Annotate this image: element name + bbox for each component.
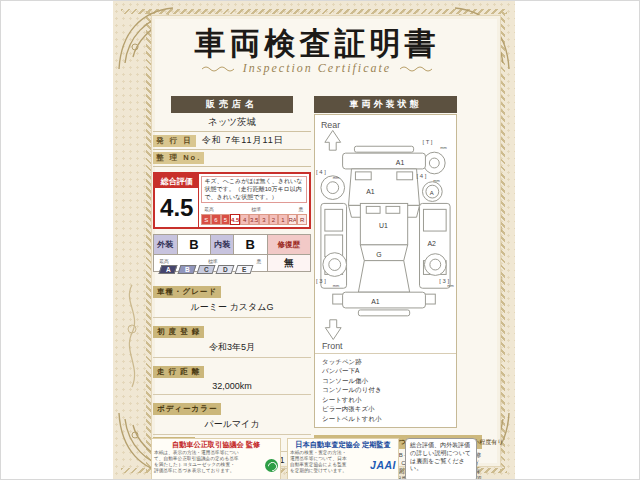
exterior-column: 車両外装状態 [314, 96, 482, 480]
marker-rear-gate: A1 [366, 188, 375, 195]
back-note-box: 総合評価、内外装評価の詳しい説明については裏面をご覧ください。 [405, 438, 477, 480]
exterior-note: タッチペン跡 [322, 357, 456, 366]
tread-front-left: [ 3 ] [316, 278, 326, 284]
scale-label-best: 最高 [205, 206, 215, 213]
marker-wheel: A [430, 190, 434, 196]
condition-scale-wrap: 最高 標準 悪 ABCDE [154, 255, 267, 271]
grade-scale-cell: 6 [211, 214, 221, 225]
condition-scale-cell: A [159, 265, 178, 274]
unit-label: mm [333, 175, 340, 180]
condition-values-row: 外装 B 内装 B 修復歴 [154, 235, 310, 254]
exterior-note: シートすれ小 [322, 395, 456, 404]
ref-no-label: 整 理 No. [153, 152, 204, 164]
grade-scale-cell: 3 [259, 214, 269, 225]
grade-scale-cell: 5 [221, 214, 231, 225]
vehicle-detail-row: 車種・グレード ルーミー カスタムG [153, 278, 311, 318]
marker-rear-bumper: A1 [396, 159, 405, 166]
exterior-note: ピラー内張キズ小 [322, 404, 456, 413]
grade-scale-cell: 2 [269, 214, 279, 225]
subtitle-flourish-icon [399, 65, 433, 73]
spare-tread-label: [ T ] [422, 139, 432, 145]
car-condition-diagram: Rear Front [ T ] mm [ 4 ] mm [ 4 ] mm [ … [315, 115, 456, 353]
footer-stamps: 自動車公正取引協議会 監修 本紙は、表示の方法・運用基準等について、自動車公正取… [151, 438, 483, 480]
fair-trade-title: 自動車公正取引協議会 監修 [154, 440, 278, 450]
vehicle-detail-row: ボディーカラー パールマイカ [153, 395, 311, 435]
issue-date-row: 発 行 日 令和 7年11月11日 [153, 132, 311, 150]
page-title: 車両検査証明書 [151, 23, 483, 65]
interior-label: 内装 [210, 235, 233, 254]
exterior-label: 外装 [154, 235, 177, 254]
vehicle-detail-label: ボディーカラー [153, 403, 221, 415]
vehicle-detail-label: 走 行 距 離 [153, 366, 204, 378]
scale-label-standard: 標準 [252, 206, 262, 213]
vehicle-info-column: 販売店名 ネッツ茨城 発 行 日 令和 7年11月11日 整 理 No. 総合評… [153, 96, 311, 480]
jaai-body: 本紙の検査・査定の方法・運用基準等について、日本自動車査定協会による監査を定期的… [290, 450, 351, 473]
tread-rear-right: [ 4 ] [417, 173, 427, 179]
exterior-note: シートベルトすれ小 [322, 414, 456, 423]
grade-scale-labels: 最高 標準 悪 [201, 206, 307, 213]
tread-rear-left: [ 4 ] [316, 169, 326, 175]
unit-label: mm [440, 145, 447, 150]
overall-rating-right: キズ、へこみがほぼ無く、きれいな状態です。（走行距離10万キロ以内で、きれいな状… [199, 174, 309, 227]
fair-trade-logo-icon [265, 459, 278, 472]
grade-scale-cell: RA [288, 214, 298, 225]
marker-side-right: A2 [427, 240, 436, 247]
vehicle-detail-label: 車種・グレード [153, 286, 221, 298]
fair-trade-stamp: 自動車公正取引協議会 監修 本紙は、表示の方法・運用基準等について、自動車公正取… [151, 438, 281, 480]
grade-scale-cell: 3.5 [249, 214, 259, 225]
rating-description: キズ、へこみがほぼ無く、きれいな状態です。（走行距離10万キロ以内で、きれいな状… [201, 176, 307, 203]
vehicle-details: 車種・グレード ルーミー カスタムG 初 度 登 録 令和3年5月 走 行 距 … [153, 278, 311, 435]
grade-scale-cell: 4 [240, 214, 250, 225]
overall-rating-left: 総合評価 4.5 [155, 174, 199, 227]
grade-scale-cell: 4.5 [230, 214, 240, 225]
exterior-grade: B [177, 235, 211, 254]
side-flourish-icon [119, 281, 145, 391]
jaai-logo: JAAI [370, 459, 396, 471]
exterior-notes: タッチペン跡バンパー下Aコンソール傷小コンソールのり付きシートすれ小ピラー内張キ… [315, 353, 456, 427]
subtitle-row: Inspection Certificate [151, 61, 483, 76]
exterior-note: コンソール傷小 [322, 376, 456, 385]
repair-history-label: 修復歴 [267, 235, 310, 254]
scale-label-bad: 悪 [257, 258, 262, 265]
front-direction-label: Front [322, 341, 343, 351]
fair-trade-body: 本紙は、表示の方法・運用基準等について、自動車公正取引協議会の定める基準を満たし… [154, 450, 239, 473]
exterior-panel-header: 車両外装状態 [314, 96, 457, 113]
vehicle-detail-row: 初 度 登 録 令和3年5月 [153, 318, 311, 358]
ref-no-row: 整 理 No. [153, 150, 311, 167]
unit-label: mm [433, 178, 440, 183]
interior-grade: B [233, 235, 267, 254]
issue-date-label: 発 行 日 [153, 135, 196, 147]
vehicle-detail-value: 32,000km [153, 378, 311, 391]
overall-rating-score: 4.5 [155, 188, 198, 227]
scale-label-bad: 悪 [299, 206, 304, 213]
repair-history-value: 無 [267, 255, 310, 271]
unit-label: mm [447, 283, 454, 288]
border-band-top [121, 9, 507, 14]
vehicle-detail-value: ルーミー カスタムG [153, 298, 311, 314]
overall-rating-box: 総合評価 4.5 キズ、へこみがほぼ無く、きれいな状態です。（走行距離10万キロ… [153, 172, 311, 229]
condition-scale-cell: B [178, 265, 197, 274]
unit-label: mm [333, 283, 340, 288]
grade-scale-cell: S [201, 214, 211, 225]
condition-grid: 外装 B 内装 B 修復歴 最高 標準 悪 ABCDE 無 [153, 234, 311, 272]
certificate-page: 車両検査証明書 Inspection Certificate 販売店名 ネッツ茨… [0, 0, 640, 480]
condition-scale-cell: E [235, 265, 254, 274]
page-subtitle: Inspection Certificate [243, 61, 391, 76]
condition-scale: ABCDE [160, 265, 265, 274]
exterior-note: コンソールのり付き [322, 385, 456, 394]
vehicle-detail-row: 走 行 距 離 32,000km [153, 358, 311, 395]
grade-scale-cell: 1 [278, 214, 288, 225]
seller-name-header: 販売店名 [171, 96, 293, 113]
vehicle-detail-value: 令和3年5月 [153, 338, 311, 354]
rear-direction-label: Rear [321, 120, 340, 130]
marker-roof: U1 [379, 222, 388, 229]
vehicle-detail-label: 初 度 登 録 [153, 326, 204, 338]
condition-scale-row: 最高 標準 悪 ABCDE 無 [154, 254, 310, 271]
marker-windshield: G [376, 251, 381, 258]
seller-name-value: ネッツ茨城 [153, 113, 311, 132]
exterior-panel: Rear Front [ T ] mm [ 4 ] mm [ 4 ] mm [ … [314, 114, 457, 428]
jaai-title: 日本自動車査定協会 定期監査 [290, 440, 396, 450]
vehicle-detail-value: パールマイカ [153, 415, 311, 431]
condition-scale-cell: D [216, 265, 235, 274]
overall-rating-label: 総合評価 [155, 174, 198, 188]
grade-scale: S654.543.5321RAR [201, 214, 307, 225]
issue-date-value: 令和 7年11月11日 [202, 134, 284, 147]
grade-scale-cell: R [297, 214, 307, 225]
jaai-stamp: 日本自動車査定協会 定期監査 本紙の検査・査定の方法・運用基準等について、日本自… [287, 438, 399, 480]
marker-front-bumper: A1 [371, 298, 380, 305]
subtitle-flourish-icon [201, 65, 235, 73]
exterior-note: バンパー下A [322, 366, 456, 375]
condition-scale-cell: C [197, 265, 216, 274]
